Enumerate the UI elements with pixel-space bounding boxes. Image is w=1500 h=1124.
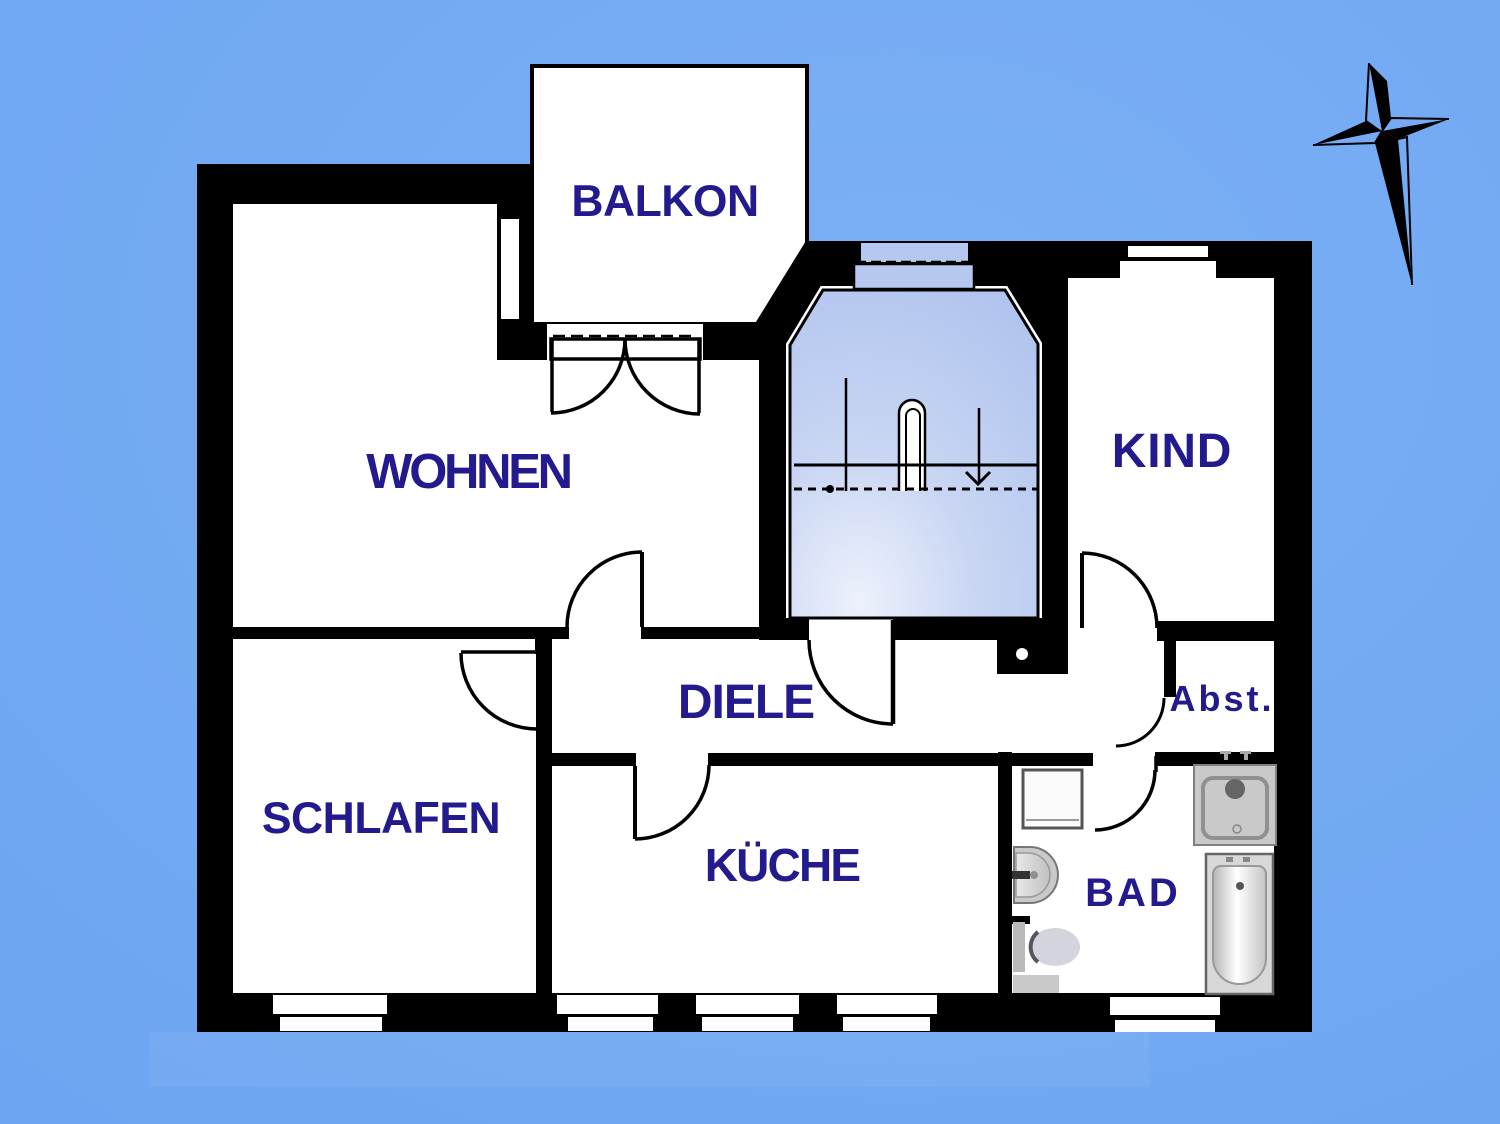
svg-text:SCHLAFEN: SCHLAFEN (262, 794, 500, 843)
svg-text:DIELE: DIELE (678, 676, 814, 729)
svg-text:BALKON: BALKON (571, 177, 758, 226)
svg-text:KÜCHE: KÜCHE (705, 839, 860, 891)
svg-text:KIND: KIND (1112, 425, 1233, 478)
svg-text:BAD: BAD (1085, 871, 1181, 915)
svg-text:Abst.: Abst. (1170, 678, 1275, 719)
svg-text:WOHNEN: WOHNEN (366, 445, 570, 499)
